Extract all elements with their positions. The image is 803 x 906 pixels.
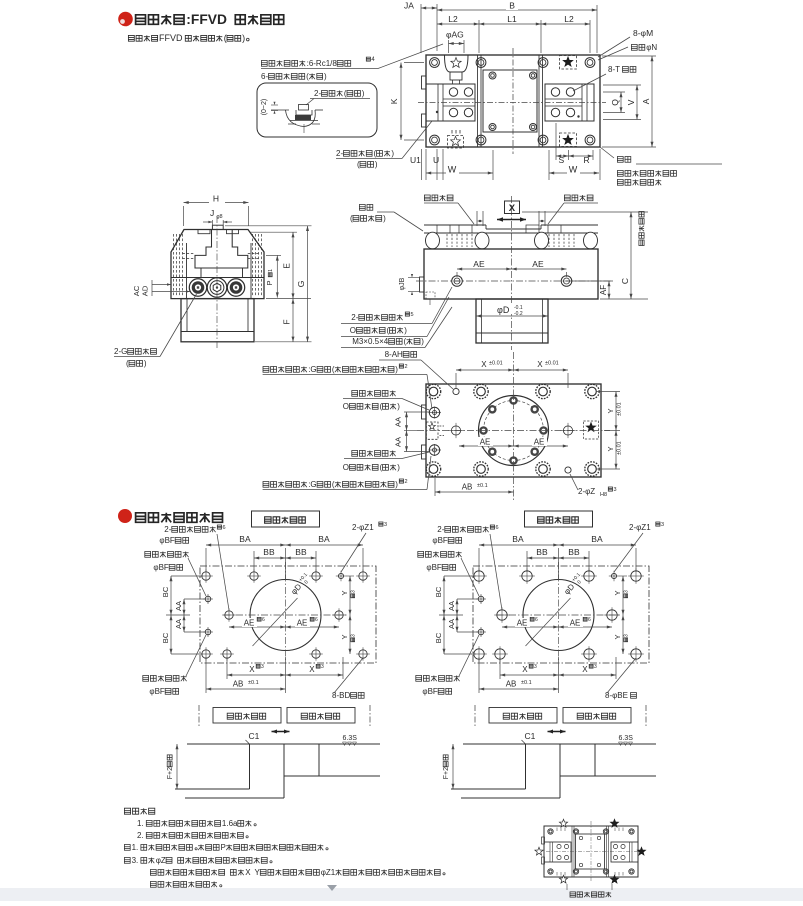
svg-text:M3×0.5×4: M3×0.5×4 — [352, 337, 389, 346]
svg-text:AA: AA — [394, 417, 403, 427]
svg-text:BB: BB — [536, 547, 548, 557]
svg-text:(: ( — [404, 337, 407, 346]
svg-text:±0.1: ±0.1 — [477, 483, 488, 489]
svg-text:BC: BC — [434, 632, 443, 643]
svg-text:X: X — [481, 360, 487, 369]
svg-text:φBF: φBF — [149, 687, 165, 696]
svg-text:φBF: φBF — [432, 536, 448, 545]
svg-text:BC: BC — [161, 586, 170, 597]
svg-text::6-Rc1/8: :6-Rc1/8 — [307, 59, 338, 68]
svg-text:(: ( — [357, 160, 360, 169]
svg-text:(: ( — [224, 33, 227, 43]
svg-text:1.: 1. — [137, 819, 144, 828]
svg-text:C: C — [620, 278, 630, 284]
svg-text:8-AH: 8-AH — [385, 350, 403, 359]
svg-text:8-φM: 8-φM — [633, 28, 653, 38]
svg-text:Y: Y — [255, 868, 261, 877]
svg-text:(: ( — [126, 359, 129, 368]
svg-text:Q: Q — [610, 99, 620, 106]
svg-text:5: 5 — [411, 312, 414, 318]
svg-text:F: F — [282, 319, 292, 324]
svg-text:B: B — [509, 1, 515, 11]
svg-text:): ) — [391, 149, 394, 158]
svg-text:AA: AA — [447, 619, 456, 629]
svg-text:AB: AB — [506, 680, 517, 689]
svg-text:AB: AB — [233, 680, 244, 689]
svg-text:J: J — [210, 208, 214, 218]
svg-text:(: ( — [387, 326, 390, 335]
svg-text:Y: Y — [613, 590, 622, 595]
svg-text:): ) — [324, 72, 327, 81]
svg-text:1.: 1. — [132, 843, 139, 852]
svg-text:P: P — [221, 843, 226, 852]
svg-text:BA: BA — [512, 534, 524, 544]
svg-text:C1: C1 — [249, 731, 260, 741]
svg-text:JA: JA — [404, 1, 414, 11]
svg-text:AA: AA — [174, 619, 183, 629]
svg-text:A: A — [641, 98, 651, 104]
svg-text:3: 3 — [614, 487, 617, 493]
svg-text:): ) — [144, 359, 147, 368]
svg-text:6: 6 — [496, 525, 499, 531]
svg-text:BB: BB — [263, 547, 275, 557]
svg-text:±0.01: ±0.01 — [489, 361, 503, 367]
svg-text:(: ( — [380, 463, 383, 472]
svg-text:(: ( — [344, 89, 347, 98]
svg-text:): ) — [362, 89, 365, 98]
svg-text:2-: 2- — [336, 149, 343, 158]
svg-text:F+2: F+2 — [443, 767, 450, 779]
svg-text:6: 6 — [588, 617, 591, 623]
svg-text:X: X — [522, 665, 528, 674]
svg-text:2.: 2. — [137, 831, 144, 840]
svg-text:6: 6 — [315, 617, 318, 623]
svg-text:(0~2): (0~2) — [261, 99, 268, 116]
svg-text:φBF: φBF — [426, 563, 442, 572]
svg-text:AA: AA — [174, 601, 183, 611]
svg-text:φJB: φJB — [399, 277, 406, 290]
svg-text:X: X — [582, 665, 588, 674]
svg-text:6: 6 — [262, 617, 265, 623]
svg-text:2-: 2- — [437, 525, 444, 534]
svg-text:8-φBE: 8-φBE — [605, 691, 628, 700]
svg-text:V: V — [626, 99, 636, 105]
svg-text:H: H — [213, 194, 219, 204]
svg-text:±0.01: ±0.01 — [617, 441, 623, 455]
svg-text:BB: BB — [568, 547, 580, 557]
svg-text:O: O — [343, 463, 349, 472]
svg-text:φZ1: φZ1 — [321, 868, 336, 877]
svg-text:φZ: φZ — [156, 856, 166, 865]
svg-text:Y: Y — [340, 590, 349, 595]
svg-text:AE: AE — [570, 619, 581, 628]
svg-text:2: 2 — [405, 364, 408, 370]
svg-text:1: 1 — [268, 269, 274, 272]
svg-text:φBF: φBF — [159, 536, 175, 545]
svg-text:Y: Y — [340, 634, 349, 639]
svg-text:3: 3 — [384, 522, 387, 528]
svg-text:AE: AE — [473, 259, 485, 269]
svg-text:AB: AB — [462, 483, 473, 492]
svg-text:X: X — [309, 665, 315, 674]
svg-text:±0.1: ±0.1 — [521, 680, 532, 686]
svg-text:8-T: 8-T — [608, 65, 620, 74]
svg-text:): ) — [383, 214, 386, 223]
svg-text:BA: BA — [591, 534, 603, 544]
svg-text:2-: 2- — [164, 525, 171, 534]
svg-text:6-: 6- — [261, 72, 268, 81]
svg-text:3: 3 — [351, 634, 357, 637]
svg-text:6: 6 — [223, 525, 226, 531]
svg-text:BC: BC — [434, 586, 443, 597]
svg-text:φN: φN — [646, 43, 657, 52]
svg-text:φD: φD — [497, 305, 510, 315]
svg-text:P: P — [265, 280, 274, 285]
svg-text:L2: L2 — [564, 14, 574, 24]
svg-text:2: 2 — [405, 479, 408, 485]
svg-text:AF: AF — [599, 285, 608, 295]
svg-text:): ) — [395, 365, 398, 374]
svg-text:U1: U1 — [410, 155, 421, 165]
svg-text:φAG: φAG — [446, 30, 464, 40]
svg-text:g8: g8 — [217, 214, 223, 220]
svg-text:E: E — [282, 263, 292, 269]
svg-text:3: 3 — [594, 664, 597, 670]
svg-text:6.3S: 6.3S — [343, 735, 358, 742]
svg-text:2-: 2- — [351, 313, 358, 322]
svg-text:2-: 2- — [314, 89, 321, 98]
svg-text:2-φZ: 2-φZ — [578, 487, 595, 496]
svg-text:G: G — [296, 281, 306, 288]
svg-text:): ) — [395, 480, 398, 489]
svg-text:2-φZ1: 2-φZ1 — [352, 523, 374, 532]
svg-text:X: X — [245, 868, 251, 877]
svg-text:AE: AE — [534, 438, 545, 447]
svg-text:AD: AD — [141, 285, 150, 296]
svg-text:2-G: 2-G — [114, 347, 127, 356]
svg-text:): ) — [397, 402, 400, 411]
svg-text:K: K — [389, 98, 399, 104]
svg-text:O: O — [350, 326, 356, 335]
svg-text:FFVD: FFVD — [159, 33, 183, 43]
svg-text:): ) — [421, 337, 424, 346]
svg-text:L2: L2 — [448, 14, 458, 24]
svg-text:(: ( — [306, 72, 309, 81]
svg-text:(: ( — [350, 214, 353, 223]
svg-text:L1: L1 — [507, 14, 517, 24]
svg-text:(: ( — [380, 402, 383, 411]
svg-text:AE: AE — [297, 619, 308, 628]
svg-text:3: 3 — [261, 664, 264, 670]
svg-text:W: W — [448, 165, 457, 175]
svg-text:C1: C1 — [525, 731, 536, 741]
svg-text:O: O — [343, 402, 349, 411]
svg-text::FFVD: :FFVD — [186, 12, 227, 27]
svg-text:3: 3 — [534, 664, 537, 670]
svg-text:BB: BB — [295, 547, 307, 557]
svg-text:6.3S: 6.3S — [619, 735, 634, 742]
svg-text:AE: AE — [244, 619, 255, 628]
svg-text:3: 3 — [321, 664, 324, 670]
svg-text:X: X — [509, 203, 516, 214]
svg-text:Y: Y — [606, 408, 615, 413]
svg-text:F+2: F+2 — [167, 767, 174, 779]
svg-text:φBF: φBF — [153, 563, 169, 572]
svg-text:AE: AE — [480, 438, 491, 447]
svg-text:X: X — [249, 665, 255, 674]
svg-text:φBF: φBF — [422, 687, 438, 696]
svg-text:3: 3 — [624, 590, 630, 593]
svg-text:): ) — [375, 160, 378, 169]
svg-text:3: 3 — [624, 634, 630, 637]
svg-text:BA: BA — [239, 534, 251, 544]
svg-text:AE: AE — [532, 259, 544, 269]
svg-text:W: W — [569, 165, 578, 175]
svg-text:Y: Y — [606, 446, 615, 451]
svg-text:(: ( — [332, 480, 335, 489]
svg-text:AA: AA — [447, 601, 456, 611]
svg-text:1.6a: 1.6a — [222, 819, 238, 828]
svg-text:(: ( — [332, 365, 335, 374]
svg-text:±0.01: ±0.01 — [617, 402, 623, 416]
svg-text:): ) — [404, 326, 407, 335]
svg-text:BA: BA — [318, 534, 330, 544]
svg-text::G: :G — [308, 480, 316, 489]
svg-text:BC: BC — [161, 632, 170, 643]
svg-text:): ) — [397, 463, 400, 472]
svg-text:(: ( — [374, 149, 377, 158]
svg-text:): ) — [242, 33, 245, 43]
svg-text:AA: AA — [394, 437, 403, 447]
svg-text:6: 6 — [535, 617, 538, 623]
svg-text:3: 3 — [661, 522, 664, 528]
svg-text:±0.01: ±0.01 — [545, 361, 559, 367]
svg-text::G: :G — [308, 365, 316, 374]
svg-text:Y: Y — [613, 634, 622, 639]
svg-text:3: 3 — [351, 590, 357, 593]
svg-text:AE: AE — [517, 619, 528, 628]
svg-text:2-φZ1: 2-φZ1 — [629, 523, 651, 532]
svg-text:X: X — [537, 360, 543, 369]
svg-text:H8: H8 — [600, 492, 607, 498]
svg-text:U: U — [433, 155, 439, 165]
svg-text:-0.2: -0.2 — [514, 311, 523, 317]
svg-text:3.: 3. — [132, 856, 139, 865]
svg-text:±0.1: ±0.1 — [248, 680, 259, 686]
